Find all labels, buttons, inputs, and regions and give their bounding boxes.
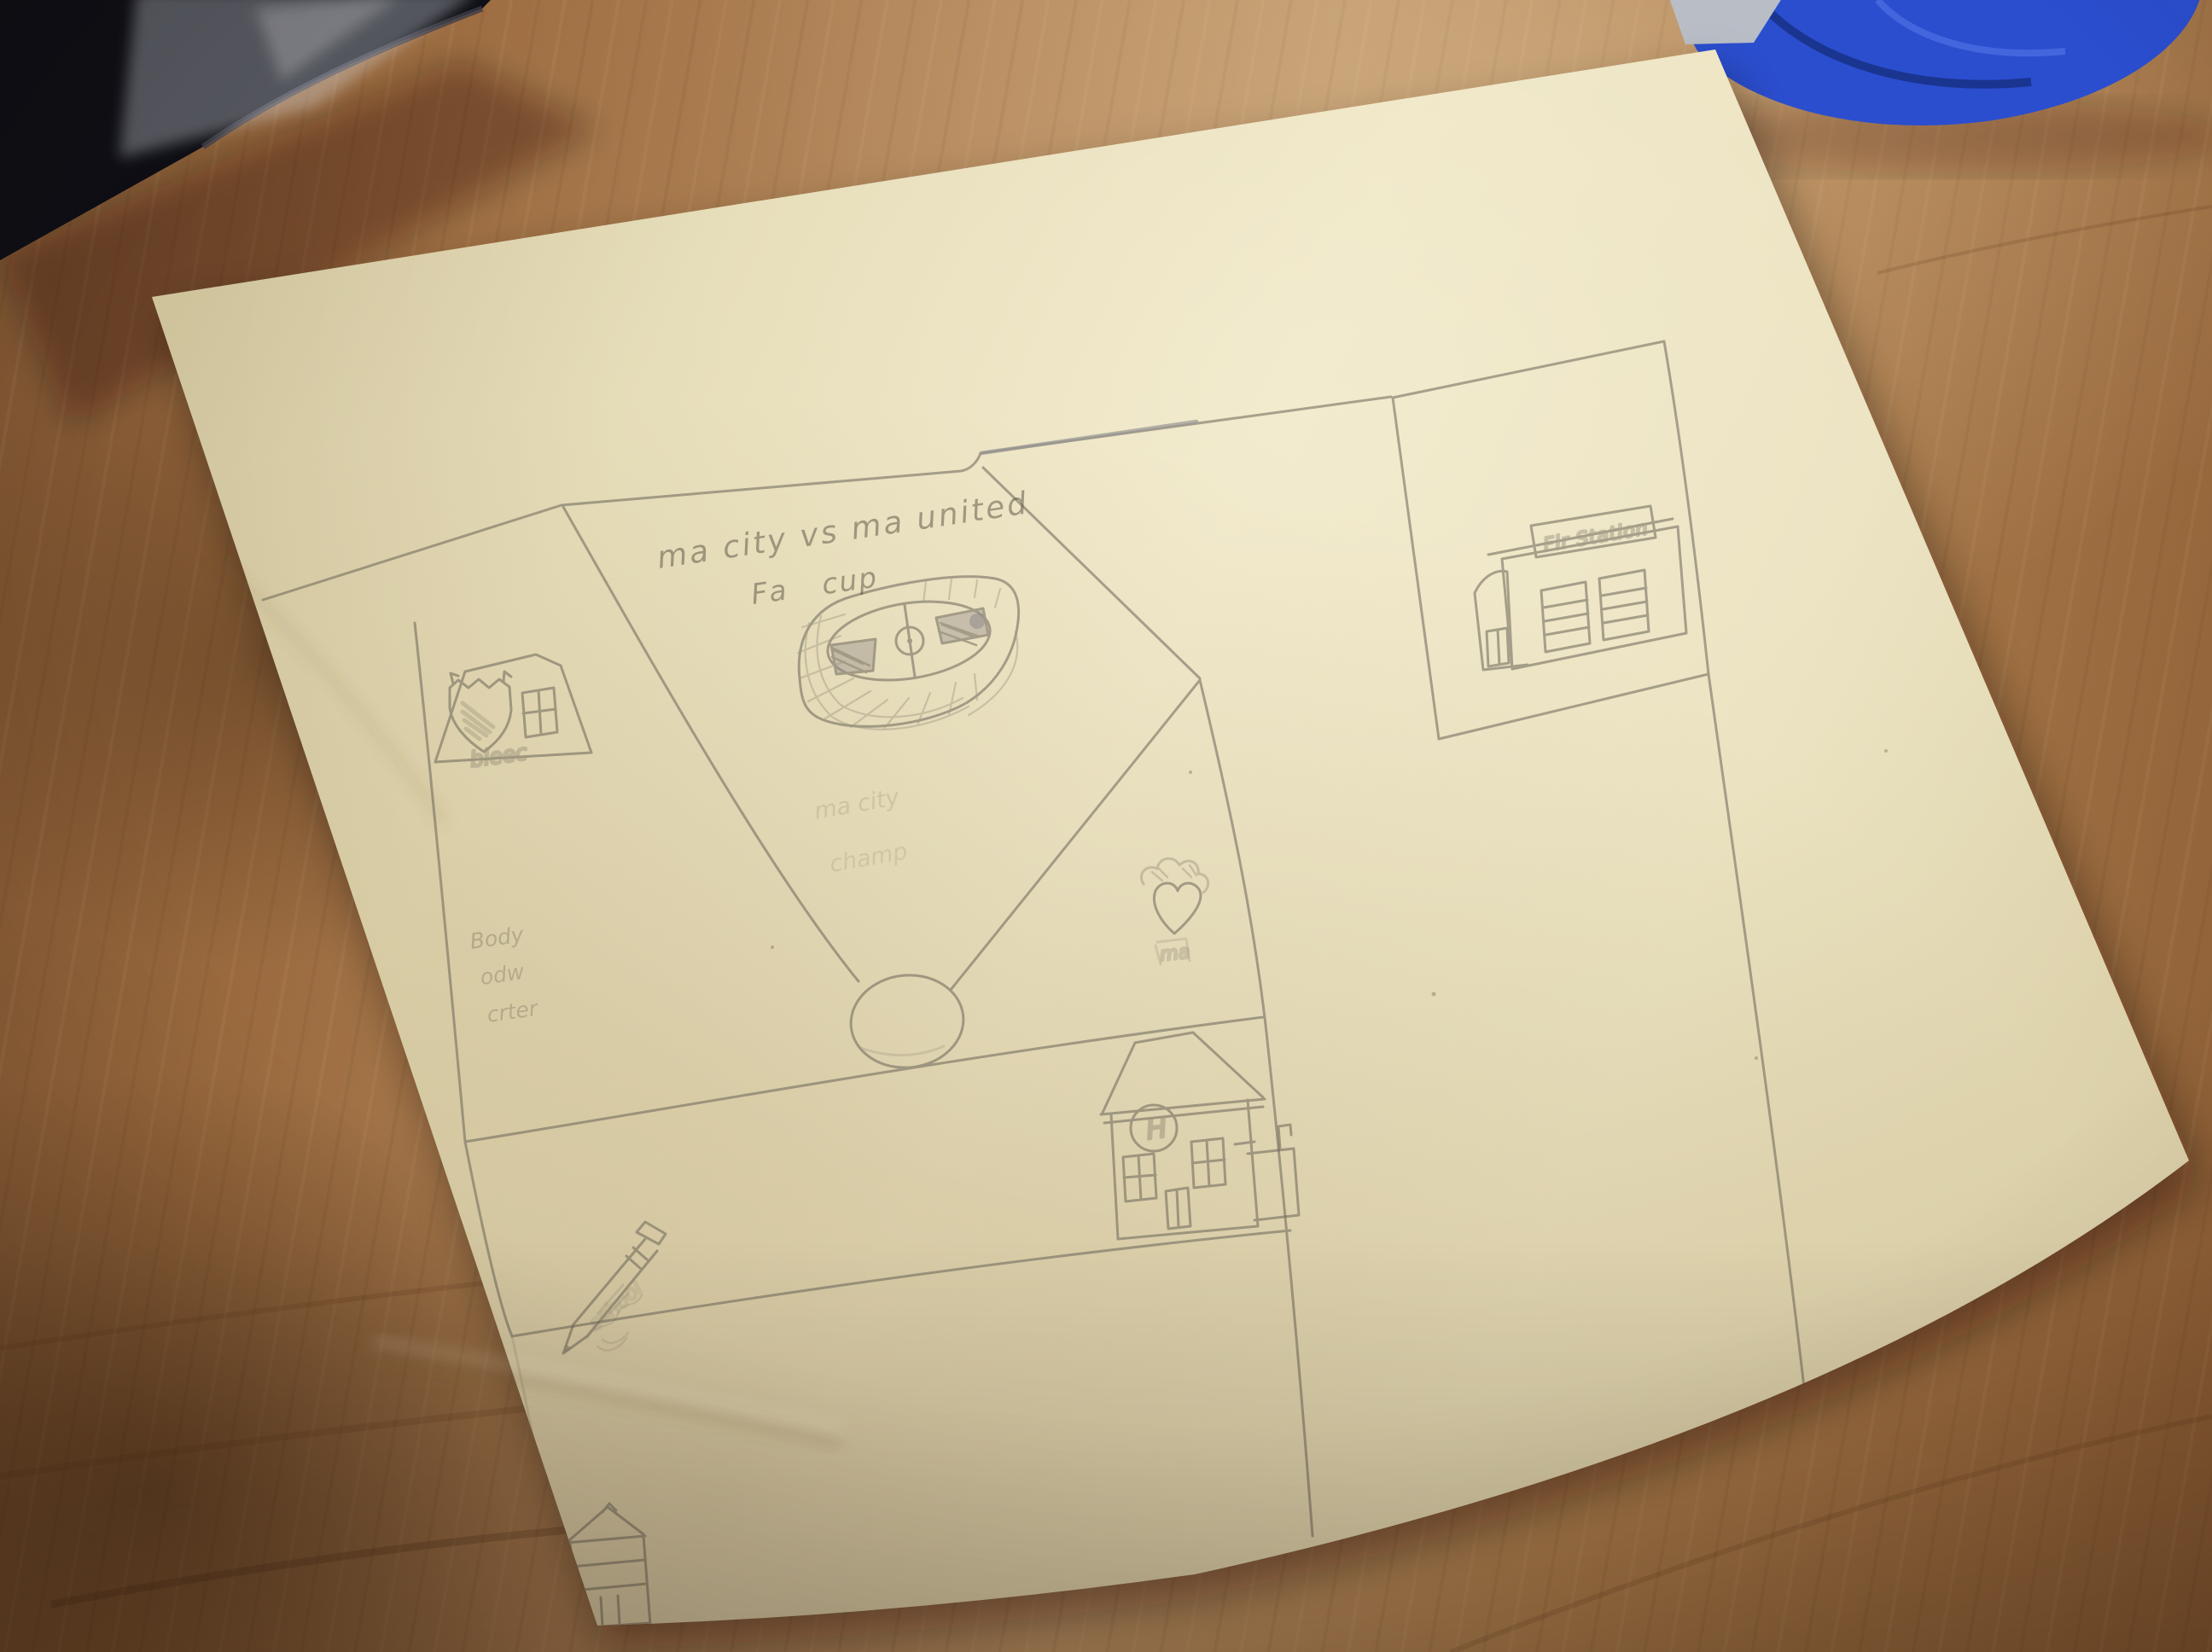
stadium-goal-left — [831, 639, 876, 674]
photo-canvas: ma city vs ma united Fa cup bleec Body o… — [0, 0, 2212, 1652]
photo-scene: ma city vs ma united Fa cup bleec Body o… — [0, 0, 2212, 1652]
paper-sheen — [152, 49, 2189, 1626]
heart-label: ma — [1159, 941, 1190, 966]
stadium-centre-spot — [907, 638, 912, 643]
